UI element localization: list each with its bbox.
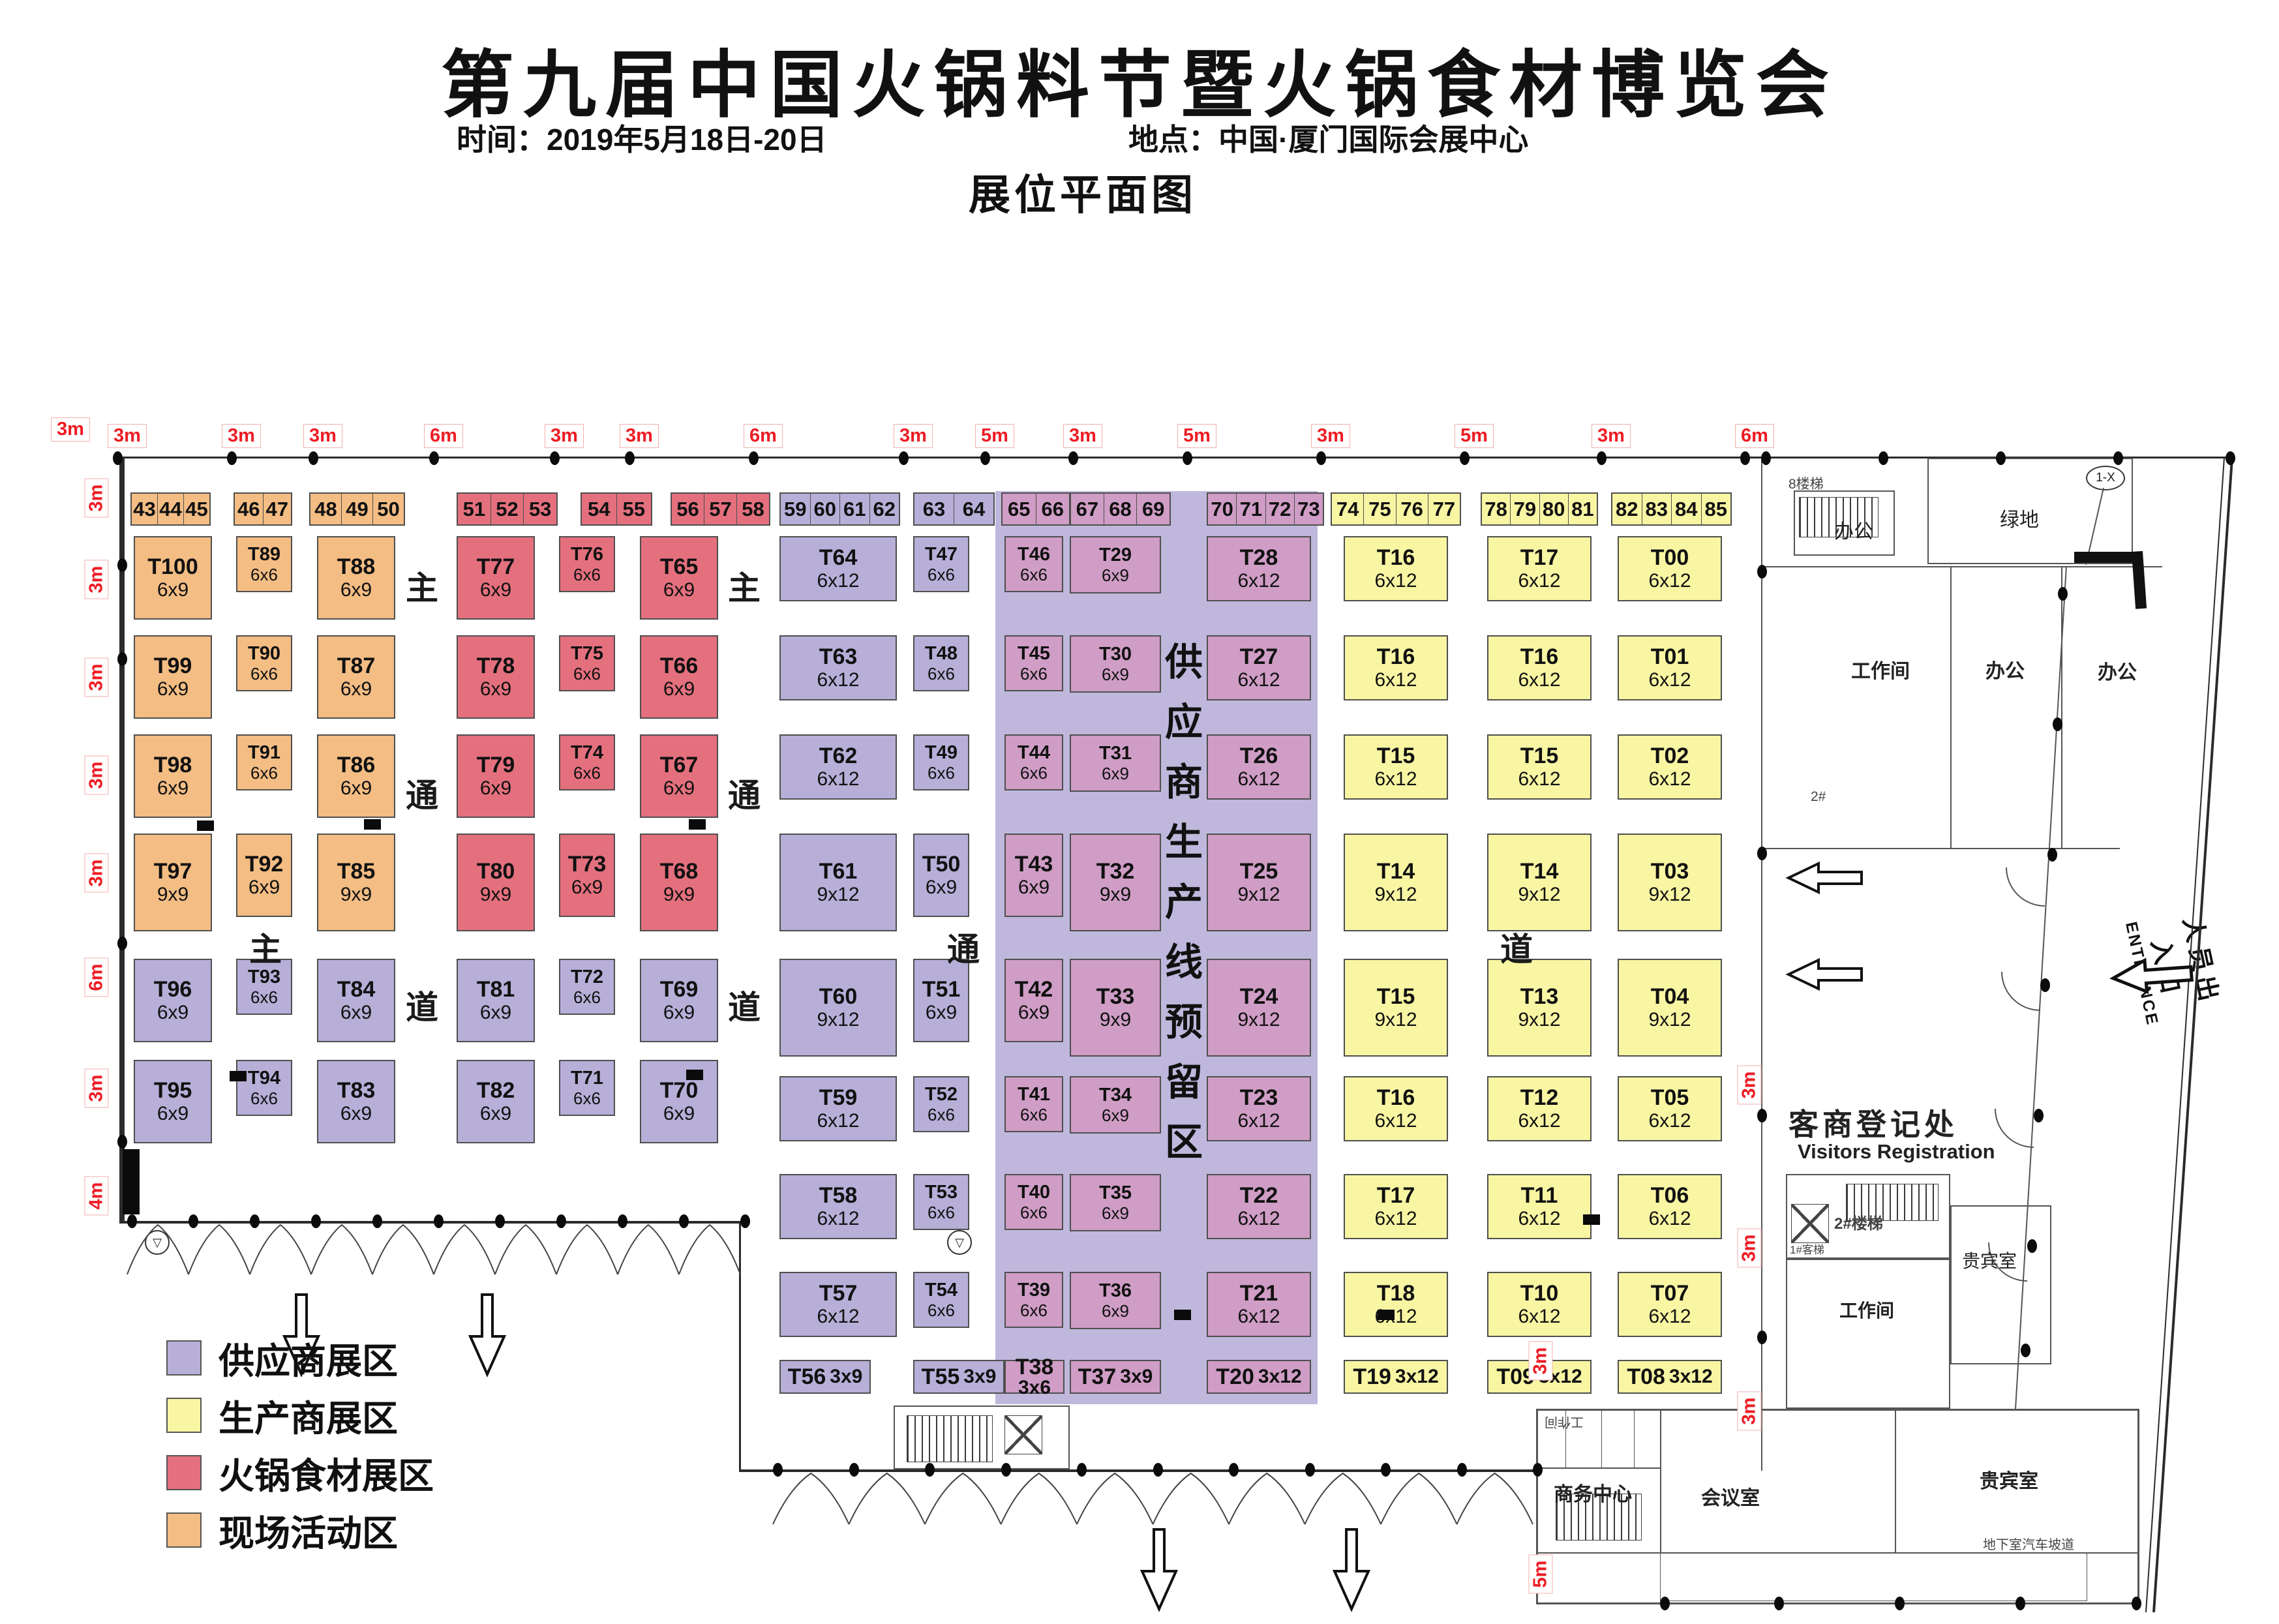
booth-name: T61 bbox=[819, 859, 858, 884]
booth-size: 6x9 bbox=[340, 579, 372, 601]
booth-name: T89 bbox=[248, 544, 280, 565]
entrance-label: 人员出入口 ENTRANCE bbox=[2121, 905, 2232, 1028]
booth-T60: T609x12 bbox=[779, 959, 897, 1057]
strip-booth-45: 45 bbox=[183, 494, 209, 524]
aisle-vertical-1-char: 道 bbox=[406, 982, 438, 1029]
booth-T72: T726x6 bbox=[559, 959, 615, 1015]
booth-name: T16 bbox=[1377, 545, 1415, 570]
plan-marker bbox=[123, 1149, 140, 1214]
booth-name: T71 bbox=[571, 1068, 603, 1089]
service-cell-v2 bbox=[1601, 1409, 1602, 1467]
dim-top: 3m bbox=[1063, 424, 1102, 448]
booth-size: 6x12 bbox=[1648, 1208, 1691, 1230]
booth-size: 6x9 bbox=[1102, 1106, 1129, 1125]
booth-name: T84 bbox=[337, 977, 376, 1002]
booth-name: T56 bbox=[788, 1364, 826, 1389]
aisle-horizontal-char: 道 bbox=[1500, 924, 1533, 970]
booth-name: T17 bbox=[1377, 1183, 1415, 1208]
strip-booth-53: 53 bbox=[523, 494, 556, 524]
reserved-band-char: 产 bbox=[1165, 871, 1203, 926]
booth-T38: T383x6 bbox=[1004, 1360, 1064, 1394]
dim-top: 3m bbox=[222, 424, 261, 448]
booth-T90: T906x6 bbox=[236, 635, 292, 691]
booth-name: T31 bbox=[1099, 743, 1132, 764]
wall-office-h2 bbox=[1761, 848, 2120, 849]
booth-size: 9x9 bbox=[480, 884, 511, 906]
booth-name: T67 bbox=[660, 753, 699, 777]
booth-name: T34 bbox=[1099, 1085, 1132, 1105]
booth-T15: T156x12 bbox=[1487, 734, 1592, 800]
wall-office-v1 bbox=[1950, 566, 1952, 848]
booth-T23: T236x12 bbox=[1207, 1076, 1311, 1141]
booth-T13: T139x12 bbox=[1487, 959, 1592, 1057]
booth-name: T51 bbox=[922, 977, 961, 1002]
booth-name: T95 bbox=[154, 1078, 192, 1103]
arrow-down-3 bbox=[1142, 1529, 1176, 1609]
strip-booth-55: 55 bbox=[616, 494, 652, 524]
strip-booth-61: 61 bbox=[839, 494, 869, 524]
column-dot bbox=[550, 451, 560, 465]
booth-T99: T996x9 bbox=[134, 635, 212, 719]
booth-name: T75 bbox=[571, 643, 603, 664]
booth-size: 6x12 bbox=[1518, 1306, 1560, 1328]
booth-name: T25 bbox=[1240, 859, 1278, 884]
booth-name: T78 bbox=[477, 654, 515, 678]
booth-size: 6x9 bbox=[663, 777, 695, 800]
booth-name: T21 bbox=[1240, 1281, 1278, 1306]
booth-T31: T316x9 bbox=[1070, 734, 1161, 792]
dim-right: 3m bbox=[1737, 1392, 1761, 1431]
column-dot bbox=[556, 1214, 566, 1228]
column-dot bbox=[1533, 1463, 1543, 1477]
plan-marker bbox=[1583, 1214, 1600, 1225]
booth-size: 6x9 bbox=[663, 678, 695, 700]
booth-name: T16 bbox=[1377, 644, 1415, 669]
column-dot bbox=[250, 1214, 260, 1228]
dim-top: 5m bbox=[1177, 424, 1216, 448]
column-dot bbox=[679, 1214, 689, 1228]
dim-right: 3m bbox=[1528, 1342, 1552, 1381]
booth-size: 9x9 bbox=[663, 884, 695, 906]
booth-T61: T619x12 bbox=[779, 834, 897, 931]
booth-size: 6x6 bbox=[250, 988, 278, 1007]
booth-size: 3x12 bbox=[1395, 1366, 1439, 1388]
reserved-band bbox=[995, 491, 1318, 1404]
label-green-space: 绿地 bbox=[2000, 504, 2039, 532]
booth-size: 6x6 bbox=[573, 988, 601, 1007]
booth-name: T55 bbox=[922, 1364, 960, 1389]
booth-T55: T553x9 bbox=[913, 1360, 1004, 1394]
strip-group-10: 676869 bbox=[1070, 492, 1171, 526]
booth-size: 6x9 bbox=[926, 877, 957, 899]
booth-T73: T736x9 bbox=[559, 834, 615, 917]
arrow-left-1 bbox=[1788, 864, 1862, 892]
booth-name: T35 bbox=[1099, 1182, 1132, 1203]
booth-size: 6x9 bbox=[1102, 566, 1129, 585]
booth-T16: T166x12 bbox=[1344, 536, 1448, 601]
plan-marker bbox=[689, 819, 706, 830]
strip-group-11: 70717273 bbox=[1207, 492, 1324, 526]
booth-size: 3x9 bbox=[830, 1366, 862, 1388]
column-dot bbox=[1183, 451, 1192, 465]
booth-size: 6x12 bbox=[1374, 1110, 1417, 1132]
booth-T69: T696x9 bbox=[640, 959, 718, 1042]
booth-T62: T626x12 bbox=[779, 734, 897, 800]
column-dot bbox=[749, 451, 759, 465]
booth-size: 6x9 bbox=[1018, 877, 1049, 899]
label-business-center: 商务中心 bbox=[1554, 1478, 1632, 1507]
booth-name: T05 bbox=[1651, 1085, 1689, 1110]
strip-group-13: 78798081 bbox=[1481, 492, 1598, 526]
booth-T26: T266x12 bbox=[1207, 734, 1311, 800]
booth-size: 6x9 bbox=[157, 1103, 189, 1125]
booth-size: 6x12 bbox=[1648, 570, 1691, 592]
booth-size: 6x6 bbox=[573, 764, 601, 783]
booth-name: T48 bbox=[925, 643, 958, 664]
strip-group-7: 59606162 bbox=[779, 492, 900, 526]
booth-name: T80 bbox=[477, 859, 515, 884]
plan-marker bbox=[230, 1071, 247, 1081]
dim-left: 3m bbox=[84, 658, 108, 697]
column-dot bbox=[1460, 451, 1470, 465]
column-dot bbox=[2040, 978, 2050, 992]
booth-name: T99 bbox=[154, 654, 192, 678]
booth-name: T29 bbox=[1099, 545, 1132, 565]
column-dot bbox=[117, 1135, 127, 1149]
booth-size: 9x12 bbox=[1374, 1009, 1417, 1031]
booth-name: T82 bbox=[477, 1078, 515, 1103]
booth-T94: T946x6 bbox=[236, 1060, 292, 1116]
strip-group-9: 6566 bbox=[1001, 492, 1070, 526]
arrow-down-4 bbox=[1335, 1529, 1368, 1609]
label-workshop-1: 工作间 bbox=[1851, 655, 1910, 684]
strip-booth-52: 52 bbox=[491, 494, 524, 524]
booth-T96: T966x9 bbox=[134, 959, 212, 1042]
booth-name: T83 bbox=[337, 1078, 376, 1103]
column-dot bbox=[1597, 451, 1607, 465]
booth-name: T70 bbox=[660, 1078, 699, 1103]
column-dot bbox=[1879, 451, 1888, 465]
booth-T75: T756x6 bbox=[559, 635, 615, 691]
arrow-down-2 bbox=[470, 1295, 504, 1374]
booth-T08: T083x12 bbox=[1618, 1360, 1722, 1394]
booth-size: 6x12 bbox=[1518, 570, 1560, 592]
booth-T47: T476x6 bbox=[913, 536, 969, 592]
dim-top: 3m bbox=[303, 424, 342, 448]
booth-name: T14 bbox=[1377, 859, 1415, 884]
column-dot bbox=[127, 1214, 137, 1228]
column-dot bbox=[495, 1214, 505, 1228]
label-office-1: 办公 bbox=[1834, 515, 1873, 544]
booth-size: 9x12 bbox=[1648, 884, 1691, 906]
booth-name: T58 bbox=[819, 1183, 858, 1208]
dim-left: 3m bbox=[84, 756, 108, 795]
column-dot bbox=[1316, 451, 1326, 465]
label-workshop-2: 工作间 bbox=[1839, 1297, 1894, 1323]
dim-left: 6m bbox=[84, 958, 108, 997]
booth-T02: T026x12 bbox=[1618, 734, 1722, 800]
booth-size: 6x12 bbox=[1237, 1110, 1280, 1132]
column-dot bbox=[2226, 451, 2235, 465]
booth-T36: T366x9 bbox=[1070, 1272, 1161, 1329]
booth-name: T53 bbox=[925, 1182, 958, 1203]
survey-symbol-1: ▽ bbox=[145, 1230, 170, 1255]
strip-booth-62: 62 bbox=[869, 494, 899, 524]
label-stair8: 8楼梯 bbox=[1788, 474, 1824, 493]
event-venue: 地点：中国·厦门国际会展中心 bbox=[1128, 116, 1528, 159]
column-dot bbox=[2015, 1597, 2025, 1610]
booth-name: T50 bbox=[922, 852, 961, 877]
booth-T16: T166x12 bbox=[1487, 635, 1592, 700]
booth-size: 9x12 bbox=[1648, 1009, 1691, 1031]
booth-name: T98 bbox=[154, 753, 192, 777]
booth-size: 6x12 bbox=[1374, 768, 1417, 790]
booth-size: 9x12 bbox=[817, 884, 859, 906]
booth-T34: T346x9 bbox=[1070, 1076, 1161, 1134]
booth-size: 6x9 bbox=[340, 1002, 372, 1024]
booth-T51: T516x9 bbox=[913, 959, 969, 1042]
plan-marker bbox=[686, 1070, 703, 1080]
label-vip-1: 贵宾室 bbox=[1962, 1247, 2017, 1273]
booth-T100: T1006x9 bbox=[134, 536, 212, 620]
booth-name: T33 bbox=[1096, 984, 1135, 1009]
aisle-vertical-2-char: 道 bbox=[728, 982, 761, 1029]
booth-size: 6x9 bbox=[1102, 764, 1129, 783]
booth-name: T04 bbox=[1651, 984, 1689, 1009]
booth-T40: T406x6 bbox=[1004, 1174, 1063, 1230]
booth-name: T60 bbox=[819, 984, 858, 1009]
strip-group-4: 515253 bbox=[457, 492, 558, 526]
booth-T83: T836x9 bbox=[317, 1060, 395, 1143]
booth-size: 6x12 bbox=[1648, 669, 1691, 691]
booth-T84: T846x9 bbox=[317, 959, 395, 1042]
dim-top: 3m bbox=[545, 424, 584, 448]
booth-name: T18 bbox=[1377, 1281, 1415, 1306]
booth-size: 6x9 bbox=[157, 777, 189, 800]
column-dot bbox=[1895, 1597, 1905, 1610]
dim-left: 4m bbox=[84, 1177, 108, 1216]
column-dot bbox=[1740, 451, 1750, 465]
strip-group-1: 434445 bbox=[130, 492, 211, 526]
booth-size: 6x6 bbox=[928, 565, 955, 584]
column-dot bbox=[117, 937, 127, 950]
booth-name: T66 bbox=[660, 654, 699, 678]
booth-size: 9x12 bbox=[1237, 1009, 1280, 1031]
column-dot bbox=[117, 558, 127, 572]
booth-name: T96 bbox=[154, 977, 192, 1002]
booth-T19: T193x12 bbox=[1344, 1360, 1448, 1394]
booth-size: 6x12 bbox=[817, 768, 859, 790]
booth-T50: T506x9 bbox=[913, 834, 969, 917]
booth-size: 9x9 bbox=[157, 884, 189, 906]
column-dot bbox=[1757, 1109, 1767, 1122]
booth-T64: T646x12 bbox=[779, 536, 897, 601]
booth-T66: T666x9 bbox=[640, 635, 718, 719]
booth-size: 6x9 bbox=[480, 678, 511, 700]
label-ramp: 地下室汽车坡道 bbox=[1983, 1534, 2074, 1553]
aisle-vertical-1-char: 通 bbox=[406, 770, 438, 817]
booth-size: 6x12 bbox=[1237, 768, 1280, 790]
label-office-2: 办公 bbox=[1985, 655, 2025, 684]
column-dot bbox=[1153, 1463, 1163, 1477]
column-dot bbox=[2113, 451, 2123, 465]
reserved-band-char: 区 bbox=[1165, 1111, 1203, 1166]
booth-T30: T306x9 bbox=[1070, 635, 1161, 693]
booth-name: T16 bbox=[1520, 644, 1559, 669]
floor-plan-page: 第九届中国火锅料节暨火锅食材博览会 时间：2019年5月18日-20日 地点：中… bbox=[0, 0, 2279, 1624]
strip-booth-79: 79 bbox=[1510, 494, 1539, 524]
strip-booth-60: 60 bbox=[810, 494, 840, 524]
dim-right: 3m bbox=[1737, 1229, 1761, 1268]
booth-size: 6x12 bbox=[1518, 1208, 1560, 1230]
booth-name: T74 bbox=[571, 742, 603, 763]
strip-booth-48: 48 bbox=[310, 494, 341, 524]
booth-size: 6x6 bbox=[928, 1203, 955, 1222]
booth-name: T91 bbox=[248, 742, 280, 763]
booth-size: 6x9 bbox=[480, 777, 511, 800]
door-arc-right-2 bbox=[2001, 972, 2040, 1011]
service-cells-h bbox=[1536, 1467, 1660, 1469]
room-vip-1 bbox=[1950, 1205, 2051, 1364]
booth-name: T85 bbox=[337, 859, 376, 884]
booth-name: T44 bbox=[1018, 742, 1050, 763]
booth-name: T100 bbox=[147, 554, 198, 579]
booth-size: 3x6 bbox=[1018, 1378, 1051, 1398]
survey-symbol-2: ▽ bbox=[947, 1230, 972, 1255]
booth-T86: T866x9 bbox=[317, 734, 395, 818]
booth-T12: T126x12 bbox=[1487, 1076, 1592, 1141]
booth-size: 6x6 bbox=[573, 565, 601, 584]
label-vip-2: 贵宾室 bbox=[1980, 1465, 2038, 1494]
booth-size: 6x12 bbox=[1374, 570, 1417, 592]
legend-item-2: 生产商展区 bbox=[166, 1389, 398, 1441]
column-dot bbox=[618, 1214, 627, 1228]
booth-size: 6x9 bbox=[340, 777, 372, 800]
strip-group-6: 565758 bbox=[671, 492, 770, 526]
booth-size: 6x9 bbox=[1102, 1204, 1129, 1223]
booth-size: 6x12 bbox=[1374, 1208, 1417, 1230]
booth-size: 6x9 bbox=[926, 1002, 957, 1024]
booth-name: T26 bbox=[1240, 744, 1278, 768]
booth-name: T32 bbox=[1096, 859, 1135, 884]
reserved-band-char: 供 bbox=[1165, 631, 1203, 686]
booth-name: T11 bbox=[1521, 1183, 1558, 1208]
booth-size: 6x6 bbox=[928, 1301, 955, 1320]
booth-size: 6x12 bbox=[1518, 1110, 1560, 1132]
booth-name: T23 bbox=[1240, 1085, 1278, 1110]
booth-T80: T809x9 bbox=[457, 834, 535, 931]
booth-T71: T716x6 bbox=[559, 1060, 615, 1116]
plan-marker bbox=[1378, 1310, 1395, 1320]
booth-size: 3x9 bbox=[1120, 1366, 1153, 1388]
booth-T52: T526x6 bbox=[913, 1076, 969, 1132]
booth-name: T42 bbox=[1015, 977, 1053, 1002]
booth-name: T36 bbox=[1099, 1280, 1132, 1301]
booth-T82: T826x9 bbox=[457, 1060, 535, 1143]
column-dot bbox=[1757, 565, 1767, 579]
booth-size: 6x9 bbox=[1102, 665, 1129, 684]
booth-name: T77 bbox=[477, 554, 515, 579]
dim-top: 3m bbox=[894, 424, 933, 448]
column-dot bbox=[773, 1463, 783, 1477]
booth-name: T17 bbox=[1520, 545, 1559, 570]
booth-name: T79 bbox=[477, 753, 515, 777]
aisle-vertical-2-char: 通 bbox=[728, 770, 761, 817]
booth-T16: T166x12 bbox=[1344, 635, 1448, 700]
booth-T58: T586x12 bbox=[779, 1174, 897, 1239]
legend-swatch bbox=[166, 1340, 202, 1376]
booth-size: 6x6 bbox=[1020, 1105, 1048, 1124]
booth-name: T46 bbox=[1018, 544, 1050, 565]
column-dot bbox=[2058, 587, 2068, 601]
booth-T59: T596x12 bbox=[779, 1076, 897, 1141]
column-dot bbox=[189, 1214, 198, 1228]
booth-name: T62 bbox=[819, 744, 858, 768]
label-office-3: 办公 bbox=[2098, 656, 2137, 685]
booth-size: 6x12 bbox=[817, 669, 859, 691]
legend-swatch bbox=[166, 1512, 202, 1548]
booth-T89: T896x6 bbox=[236, 536, 292, 592]
arrow-left-2 bbox=[1788, 960, 1862, 989]
column-dot bbox=[849, 1463, 859, 1477]
column-dot bbox=[1001, 1463, 1011, 1477]
booth-size: 6x9 bbox=[157, 1002, 189, 1024]
booth-T49: T496x6 bbox=[913, 734, 969, 790]
reserved-band-char: 生 bbox=[1165, 811, 1203, 866]
booth-size: 9x9 bbox=[1100, 884, 1131, 906]
booth-T01: T016x12 bbox=[1618, 635, 1722, 700]
booth-name: T94 bbox=[248, 1068, 280, 1089]
booth-size: 6x6 bbox=[928, 665, 955, 684]
booth-size: 6x12 bbox=[1648, 1306, 1691, 1328]
dim-left: 3m bbox=[84, 479, 108, 518]
reserved-band-char: 线 bbox=[1165, 931, 1203, 986]
booth-name: T76 bbox=[571, 544, 603, 565]
label-workshop-3: 工作间 bbox=[1545, 1414, 1584, 1433]
booth-name: T81 bbox=[477, 977, 515, 1002]
legend-label: 火锅食材展区 bbox=[219, 1447, 434, 1499]
column-dot bbox=[1757, 1331, 1767, 1344]
booth-T74: T746x6 bbox=[559, 734, 615, 790]
booth-T87: T876x9 bbox=[317, 635, 395, 719]
booth-size: 6x12 bbox=[1648, 768, 1691, 790]
booth-name: T30 bbox=[1099, 644, 1132, 665]
strip-booth-59: 59 bbox=[781, 494, 810, 524]
booth-name: T38 bbox=[1016, 1356, 1054, 1378]
strip-booth-71: 71 bbox=[1236, 494, 1265, 524]
booth-T17: T176x12 bbox=[1344, 1174, 1448, 1239]
column-dot bbox=[2021, 1344, 2030, 1357]
dim-left: 3m bbox=[84, 854, 108, 893]
booth-size: 6x9 bbox=[157, 579, 189, 601]
column-dot bbox=[1077, 1463, 1087, 1477]
booth-name: T59 bbox=[819, 1085, 858, 1110]
strip-booth-73: 73 bbox=[1294, 494, 1323, 524]
label-lift1: 1#客梯 bbox=[1790, 1241, 1824, 1257]
booth-T20: T203x12 bbox=[1207, 1360, 1311, 1394]
dim-right: 5m bbox=[1528, 1555, 1552, 1594]
booth-T14: T149x12 bbox=[1487, 834, 1592, 931]
elevator-1 bbox=[1791, 1204, 1829, 1243]
booth-name: T10 bbox=[1520, 1281, 1559, 1306]
column-dot bbox=[1757, 847, 1767, 860]
booth-T39: T396x6 bbox=[1004, 1272, 1063, 1328]
strip-booth-47: 47 bbox=[263, 494, 292, 524]
booth-name: T92 bbox=[245, 852, 284, 877]
booth-T85: T859x9 bbox=[317, 834, 395, 931]
column-dot bbox=[1305, 1463, 1315, 1477]
service-v2 bbox=[1895, 1409, 1896, 1552]
